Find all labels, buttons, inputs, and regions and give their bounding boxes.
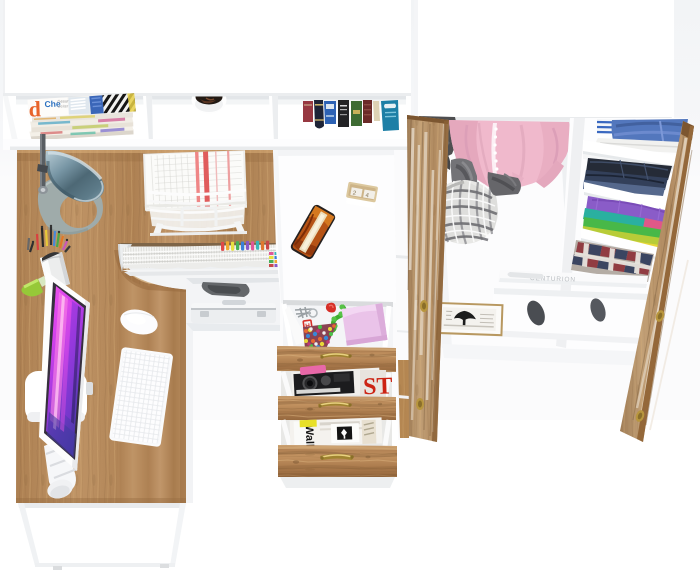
svg-text:Wall: Wall [303,425,316,448]
svg-text:ST: ST [363,373,393,400]
svg-text:d: d [28,96,41,121]
